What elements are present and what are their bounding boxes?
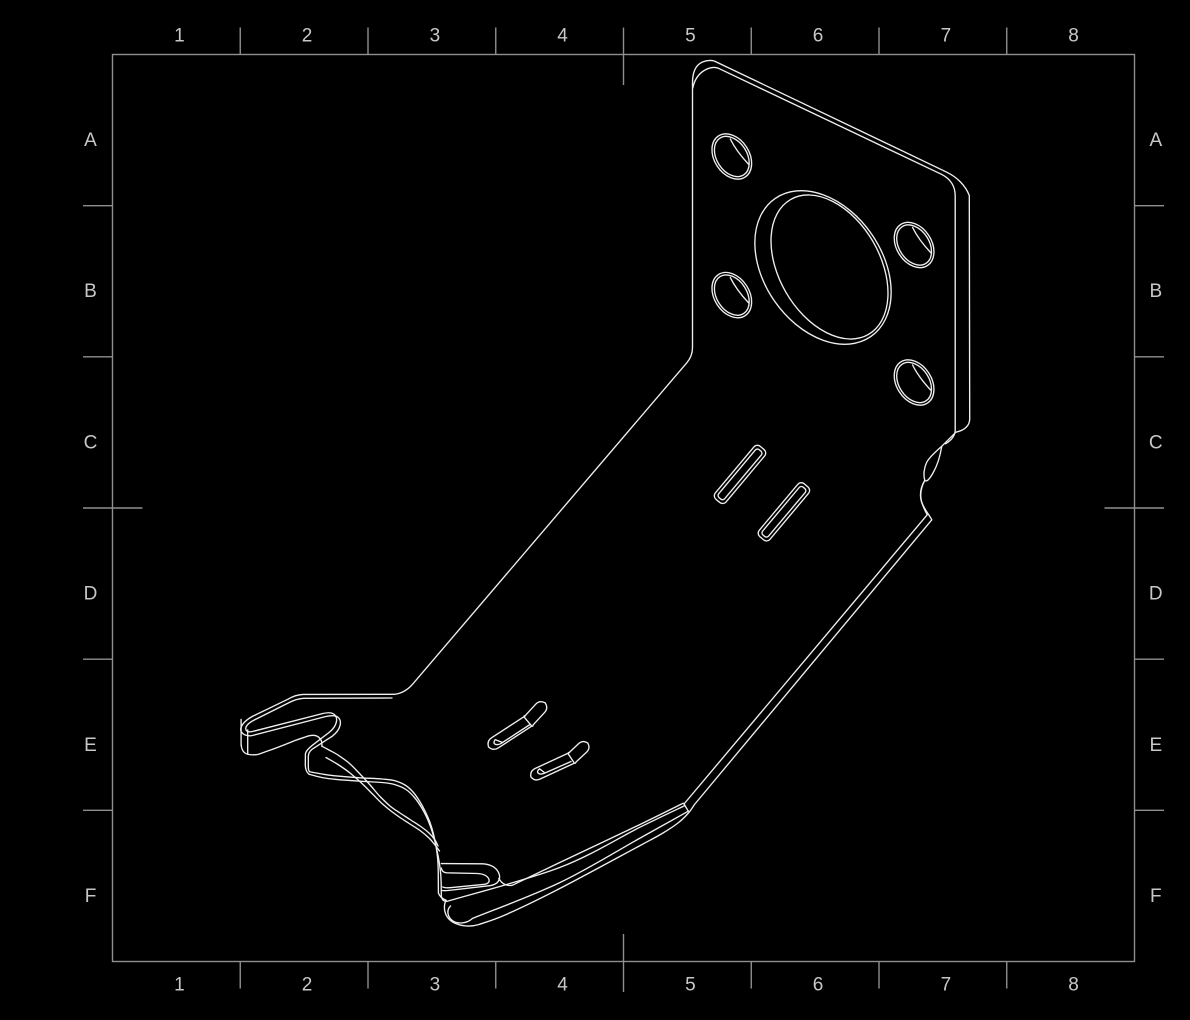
svg-text:E: E	[1149, 735, 1162, 756]
svg-text:5: 5	[685, 26, 696, 47]
svg-text:A: A	[1149, 130, 1162, 151]
svg-text:8: 8	[1068, 975, 1079, 996]
svg-text:2: 2	[302, 26, 313, 47]
svg-text:8: 8	[1068, 26, 1079, 47]
svg-text:2: 2	[302, 975, 313, 996]
svg-text:A: A	[84, 130, 97, 151]
svg-text:E: E	[84, 735, 97, 756]
svg-text:F: F	[1150, 886, 1162, 907]
svg-text:D: D	[84, 584, 98, 605]
svg-text:3: 3	[430, 26, 441, 47]
svg-text:1: 1	[174, 975, 185, 996]
svg-text:B: B	[84, 281, 97, 302]
svg-text:6: 6	[813, 26, 824, 47]
svg-text:4: 4	[557, 975, 568, 996]
svg-text:6: 6	[813, 975, 824, 996]
svg-text:3: 3	[430, 975, 441, 996]
svg-text:5: 5	[685, 975, 696, 996]
svg-text:7: 7	[941, 975, 952, 996]
svg-text:F: F	[85, 886, 97, 907]
svg-text:D: D	[1149, 584, 1163, 605]
svg-text:C: C	[1149, 432, 1163, 453]
svg-text:B: B	[1149, 281, 1162, 302]
svg-text:4: 4	[557, 26, 568, 47]
svg-text:1: 1	[174, 26, 185, 47]
svg-text:C: C	[84, 432, 98, 453]
svg-text:7: 7	[941, 26, 952, 47]
